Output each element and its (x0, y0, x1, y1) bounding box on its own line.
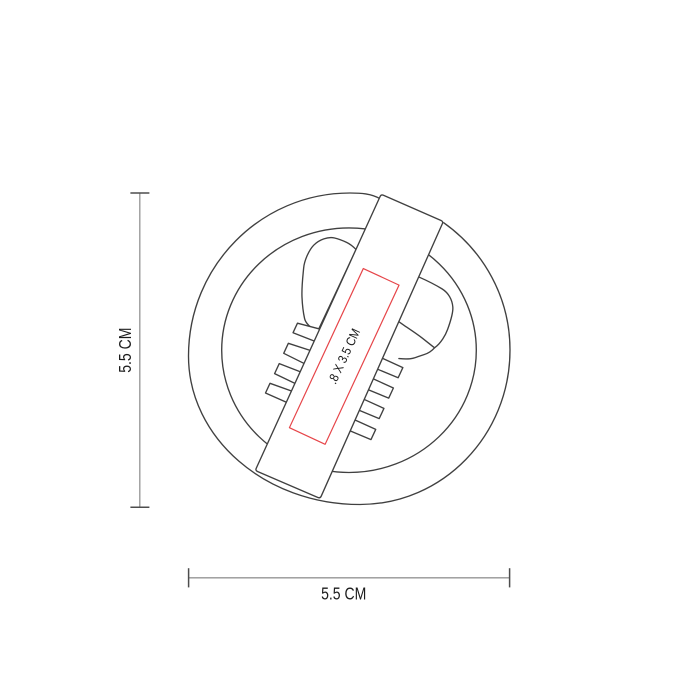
svg-text:5.5 CM: 5.5 CM (321, 584, 366, 604)
svg-text:5.5 CM: 5.5 CM (115, 328, 135, 373)
